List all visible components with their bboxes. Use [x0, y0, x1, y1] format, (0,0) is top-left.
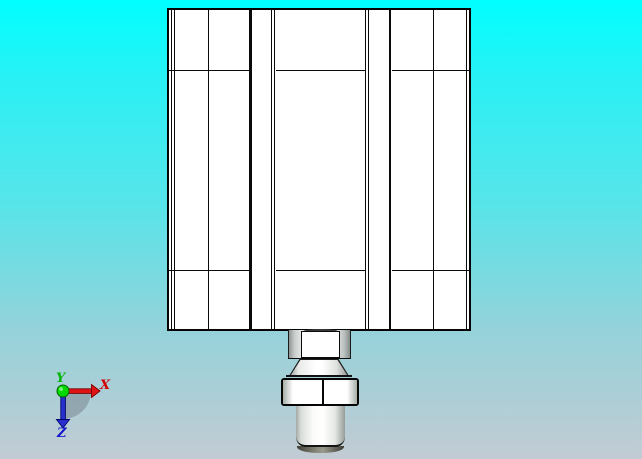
body-left-inner-line-2 [174, 10, 175, 329]
barrel-right-edge-line-1 [365, 10, 366, 329]
rod-flare-cone[interactable] [289, 359, 349, 377]
barrel-left-edge-line-1 [271, 10, 272, 329]
origin-ball [57, 385, 69, 397]
origin-ball-highlight [59, 387, 63, 391]
nut-facet-edge-line [322, 380, 324, 404]
rod-gland-flats[interactable] [301, 331, 340, 358]
piston-rod[interactable] [296, 405, 345, 447]
top-cap-parting-line-left [169, 70, 249, 72]
body-right-inner-line [466, 10, 467, 329]
rod-flare-base-line [286, 375, 352, 377]
x-axis-label: X [100, 379, 110, 392]
bottom-cap-parting-line-right [392, 270, 470, 272]
body-left-profile-line [208, 10, 209, 329]
rod-hex-nut[interactable] [281, 378, 359, 406]
rod-flare-cone-face [290, 360, 348, 376]
y-axis-label: Y [56, 372, 65, 385]
body-right-profile-line [433, 10, 434, 329]
bottom-cap-parting-line-left [169, 270, 249, 272]
nut-right-shading [347, 380, 357, 404]
tie-rod-left-edge-line [249, 10, 252, 329]
cad-viewport[interactable]: Y X Z [0, 0, 642, 459]
top-cap-parting-line-middle [276, 70, 365, 72]
body-left-inner-line-1 [171, 10, 172, 329]
barrel-right-edge-line-2 [368, 10, 369, 329]
z-axis-label: Z [57, 427, 67, 440]
barrel-left-edge-line-2 [274, 10, 275, 329]
bottom-cap-parting-line-middle [276, 270, 365, 272]
top-cap-parting-line-right [392, 70, 470, 72]
cylinder-body[interactable] [167, 8, 471, 331]
nut-left-shading [283, 380, 293, 404]
piston-rod-chamfer-tip [297, 446, 344, 453]
tie-rod-right-edge-line [389, 10, 392, 329]
